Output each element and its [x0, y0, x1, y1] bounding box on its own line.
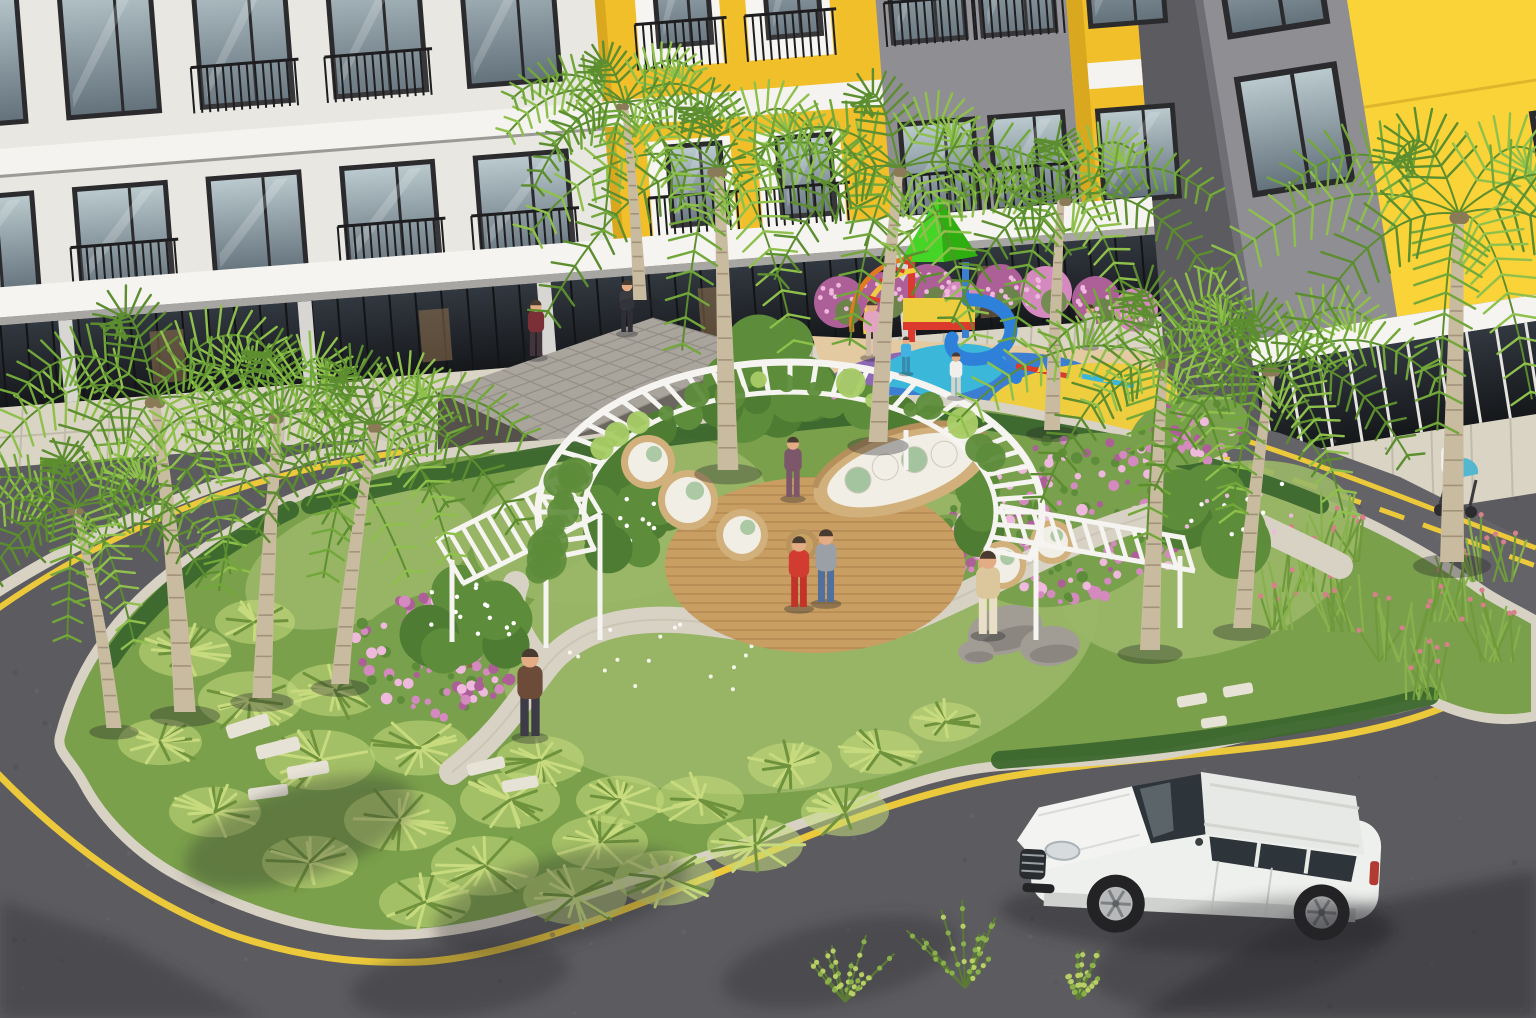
scene-canvas	[0, 0, 1536, 1018]
courtyard-aerial-render	[0, 0, 1536, 1018]
